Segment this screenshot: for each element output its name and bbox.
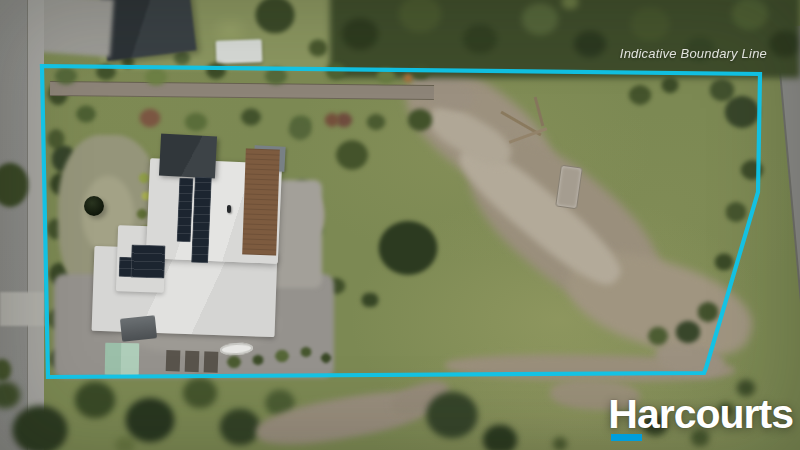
boundary-overlay xyxy=(0,0,800,450)
harcourts-logo: Harcourts xyxy=(608,394,793,435)
boundary-line xyxy=(42,66,760,377)
logo-text: Harcourts xyxy=(608,394,793,435)
logo-underline xyxy=(611,434,642,441)
boundary-label: Indicative Boundary Line xyxy=(620,46,767,61)
aerial-property-photo: Indicative Boundary Line Harcourts xyxy=(0,0,800,450)
